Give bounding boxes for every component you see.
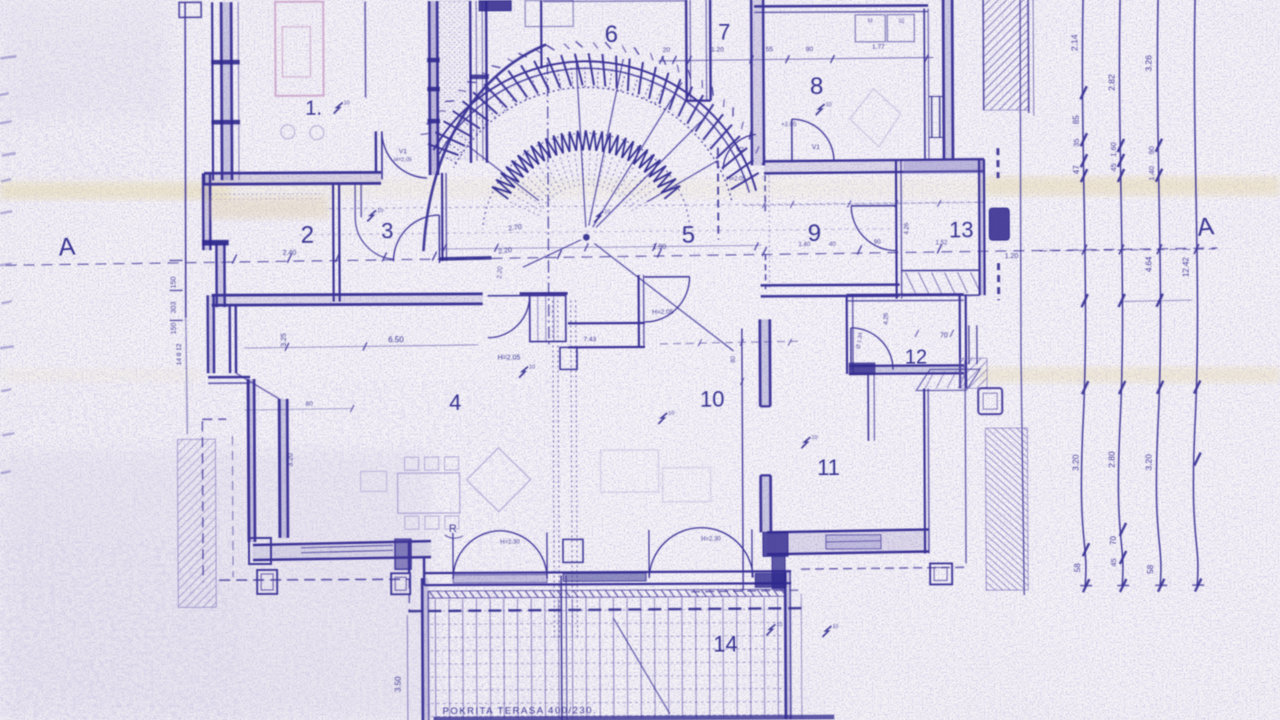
svg-text:H=2.05: H=2.05	[726, 176, 746, 182]
svg-text:5: 5	[682, 222, 696, 249]
svg-text:+2.05: +2.05	[781, 122, 797, 128]
svg-text:70: 70	[1109, 536, 1118, 545]
svg-text:40: 40	[829, 242, 836, 248]
svg-text:A: A	[1196, 212, 1216, 242]
svg-text:14: 14	[713, 631, 738, 656]
svg-text:45: 45	[1109, 558, 1118, 566]
svg-text:20: 20	[663, 47, 671, 54]
svg-text:H=2.05: H=2.05	[498, 355, 521, 362]
svg-text:POKRITA TERASA 400/230.: POKRITA TERASA 400/230.	[443, 705, 598, 717]
svg-text:8: 8	[810, 73, 824, 100]
svg-text:70: 70	[940, 332, 948, 339]
svg-text:H=2.05: H=2.05	[394, 157, 412, 163]
svg-text:1.52: 1.52	[936, 240, 948, 246]
svg-text:58: 58	[1146, 564, 1155, 573]
svg-text:80: 80	[306, 401, 314, 408]
svg-text:10: 10	[700, 387, 725, 412]
svg-text:10: 10	[668, 411, 674, 417]
svg-text:3: 3	[381, 218, 393, 243]
svg-text:85: 85	[1072, 115, 1081, 124]
svg-text:1.: 1.	[305, 98, 322, 120]
svg-text:45: 45	[1109, 163, 1118, 171]
svg-text:7: 7	[718, 20, 730, 45]
svg-text:2.82: 2.82	[1107, 74, 1117, 91]
svg-text:4: 4	[449, 390, 461, 415]
svg-text:6.50: 6.50	[388, 335, 404, 344]
svg-text:H=2.05: H=2.05	[652, 309, 674, 316]
svg-text:2.14: 2.14	[1069, 34, 1079, 51]
svg-text:3.25: 3.25	[281, 333, 288, 347]
svg-text:12.42: 12.42	[1181, 257, 1190, 278]
svg-text:2: 2	[301, 222, 315, 249]
svg-text:14 8 12: 14 8 12	[176, 343, 183, 365]
svg-text:10: 10	[826, 102, 832, 108]
svg-text:12: 12	[905, 346, 927, 368]
svg-text:10: 10	[377, 208, 383, 214]
svg-text:1.40: 1.40	[1147, 166, 1156, 181]
svg-text:47: 47	[1072, 165, 1081, 174]
svg-text:V1: V1	[399, 148, 407, 155]
svg-text:3.20: 3.20	[1070, 454, 1080, 471]
svg-text:V1: V1	[812, 144, 820, 151]
svg-text:1.40: 1.40	[799, 242, 811, 248]
svg-text:2.20: 2.20	[496, 266, 504, 280]
svg-text:90: 90	[1147, 146, 1156, 154]
svg-text:10: 10	[344, 101, 350, 107]
svg-text:2.40: 2.40	[283, 250, 297, 257]
svg-text:H=2.30: H=2.30	[701, 537, 721, 543]
svg-text:1.20: 1.20	[1005, 253, 1019, 260]
svg-text:1.77: 1.77	[872, 44, 885, 51]
svg-text:Щ: Щ	[898, 19, 904, 25]
svg-text:10: 10	[811, 435, 817, 441]
svg-text:6: 6	[605, 21, 619, 48]
svg-text:90: 90	[806, 46, 814, 53]
svg-text:7.43: 7.43	[584, 336, 597, 343]
svg-text:10: 10	[604, 209, 610, 215]
svg-text:4.26: 4.26	[904, 222, 910, 234]
svg-text:1.60: 1.60	[1109, 142, 1118, 157]
svg-text:10: 10	[832, 624, 838, 630]
svg-text:4.64: 4.64	[1144, 256, 1153, 272]
svg-text:80: 80	[731, 355, 737, 362]
svg-text:3.50: 3.50	[394, 676, 403, 692]
svg-text:M: M	[868, 19, 873, 25]
svg-text:1.90: 1.90	[653, 244, 667, 251]
svg-text:13: 13	[949, 217, 974, 242]
svg-text:4.26: 4.26	[884, 312, 890, 324]
svg-text:303: 303	[171, 301, 178, 313]
svg-text:A: A	[57, 232, 76, 261]
svg-text:150: 150	[171, 276, 178, 288]
svg-text:58: 58	[1073, 563, 1082, 572]
svg-text:1.20: 1.20	[711, 47, 724, 54]
svg-text:10: 10	[776, 622, 782, 628]
svg-text:H=2.30: H=2.30	[500, 540, 520, 546]
svg-text:55: 55	[766, 46, 774, 53]
svg-text:150: 150	[171, 322, 178, 334]
svg-text:3.26: 3.26	[1143, 55, 1153, 72]
svg-text:90: 90	[874, 240, 881, 246]
svg-text:V2: V2	[736, 146, 744, 153]
svg-text:3.20: 3.20	[1143, 454, 1153, 471]
svg-text:2.80: 2.80	[1106, 451, 1116, 468]
svg-text:35: 35	[1072, 139, 1081, 147]
svg-text:10: 10	[529, 365, 535, 371]
svg-text:11: 11	[817, 455, 840, 480]
svg-text:3.20: 3.20	[287, 453, 294, 467]
